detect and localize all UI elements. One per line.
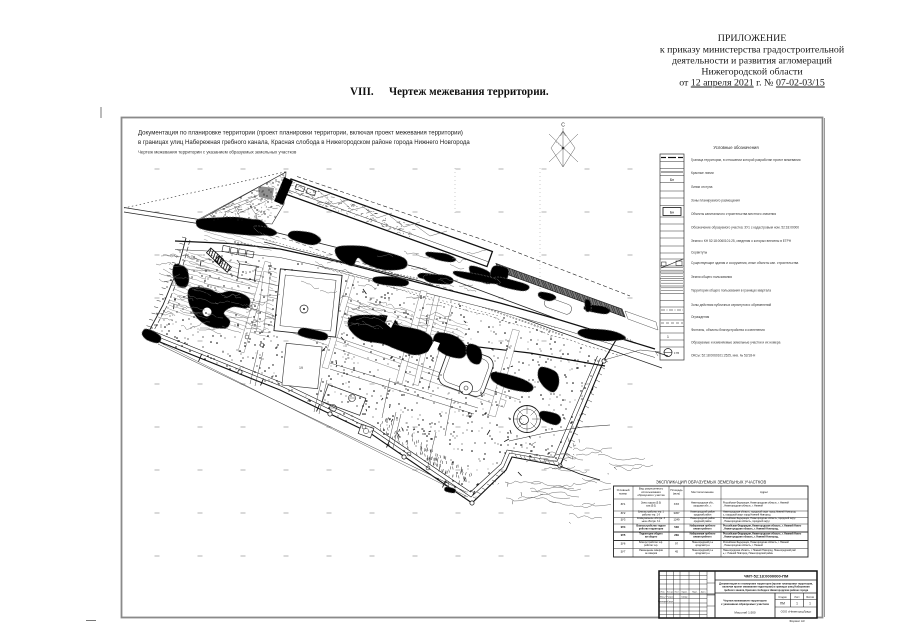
svg-text:Лист: Лист bbox=[674, 592, 679, 594]
svg-text:образуемого участка: образуемого участка bbox=[637, 493, 665, 497]
svg-text:Линии отступа: Линии отступа bbox=[691, 185, 713, 189]
svg-text:Чертеж межевания территории.: Чертеж межевания территории. bbox=[389, 86, 549, 98]
svg-text:Земли с КН 52:18:0060101:25, с: Земли с КН 52:18:0060101:25, сведения о … bbox=[691, 239, 792, 243]
svg-text:Зоны действия публичных сервит: Зоны действия публичных сервитутов и обр… bbox=[691, 303, 771, 307]
svg-text:Подп.: Подп. bbox=[692, 592, 698, 594]
svg-text:Бн: Бн bbox=[670, 211, 674, 215]
svg-text:деятельности и развития агломе: деятельности и развития агломераций bbox=[672, 56, 833, 67]
svg-text:Сервитуты: Сервитуты bbox=[691, 250, 708, 254]
svg-text:, Нижегородская область, г. Ни: , Нижегородская область, г. Нижний Новго… bbox=[723, 528, 779, 531]
svg-text:ПРИЛОЖЕНИЕ: ПРИЛОЖЕНИЕ bbox=[718, 33, 787, 44]
svg-text:ЗУ1: ЗУ1 bbox=[621, 502, 626, 506]
svg-text:1249: 1249 bbox=[674, 518, 680, 522]
svg-text:Зоны планируемого размещения: Зоны планируемого размещения bbox=[691, 199, 740, 203]
svg-text:Граница территории, в отношени: Граница территории, в отношении которой … bbox=[691, 158, 801, 162]
svg-text:ЧМТ-52:18:0000000-ПМ: ЧМТ-52:18:0000000-ПМ bbox=[744, 574, 789, 579]
svg-text:С: С bbox=[561, 123, 565, 129]
svg-text:97: 97 bbox=[675, 542, 678, 546]
svg-text:Существующие здания и сооружен: Существующие здания и сооружения, иные о… bbox=[691, 261, 799, 265]
svg-text:ЗУ2: ЗУ2 bbox=[621, 511, 626, 515]
svg-text:ородский р-н: ородский р-н bbox=[695, 544, 710, 547]
svg-text:ии общего: ии общего bbox=[645, 536, 658, 539]
svg-text:ородский район: ородский район bbox=[694, 520, 712, 523]
svg-text:ЗУ4: ЗУ4 bbox=[621, 525, 626, 529]
svg-text:Изм.: Изм. bbox=[660, 592, 665, 594]
svg-text:ЗУ5: ЗУ5 bbox=[621, 533, 626, 537]
svg-text:Объекты капитального строитель: Объекты капитального строительства местн… bbox=[691, 212, 776, 216]
svg-text:ПМ: ПМ bbox=[780, 602, 785, 606]
svg-text:3457: 3457 bbox=[674, 511, 680, 515]
svg-text:с указанием образуемых участко: с указанием образуемых участков bbox=[721, 602, 769, 606]
svg-text:Разраб: Разраб bbox=[667, 597, 675, 599]
svg-text:548: 548 bbox=[674, 525, 679, 529]
svg-text:в границах улиц Набережная гре: в границах улиц Набережная гребного кана… bbox=[138, 139, 470, 146]
svg-text:239: 239 bbox=[674, 533, 679, 537]
svg-text:1: 1 bbox=[809, 602, 811, 606]
svg-text:Шифр: Шифр bbox=[682, 596, 689, 599]
svg-text:Образуемые и изменяемые земель: Образуемые и изменяемые земельные участк… bbox=[691, 340, 781, 344]
svg-text:Ограждения: Ограждения bbox=[691, 315, 709, 319]
svg-text:Земли общего пользования: Земли общего пользования bbox=[691, 275, 732, 279]
svg-text:Лист: Лист bbox=[794, 596, 800, 599]
svg-text:ОКСы: 52:18:0060101:2525, инв.: ОКСы: 52:18:0060101:2525, инв. № 52/18-Н bbox=[691, 353, 756, 357]
svg-text:Местоположение: Местоположение bbox=[691, 490, 714, 494]
svg-text:Кол.уч: Кол.уч bbox=[667, 592, 673, 594]
svg-text:ежная гребного: ежная гребного bbox=[693, 536, 712, 539]
svg-text:Бн: Бн bbox=[670, 178, 674, 182]
svg-text:Листов: Листов bbox=[806, 596, 814, 599]
svg-text:ородский р-н: ородский р-н bbox=[695, 552, 710, 555]
svg-text:ООО «НижегородГрад»: ООО «НижегородГрад» bbox=[781, 610, 812, 614]
svg-text:Струк: Струк bbox=[667, 601, 673, 603]
svg-text:, Нижегородская область, г. Ни: , Нижегородская область, г. Нижний Новго… bbox=[723, 536, 779, 539]
svg-text:, Нижегородская область, город: , Нижегородская область, городской округ bbox=[723, 520, 770, 523]
svg-text:от 12 апреля 2021 г. № 07-02-0: от 12 апреля 2021 г. № 07-02-03/15 bbox=[679, 78, 825, 89]
svg-text:ЭКСПЛИКАЦИЯ ОБРАЗУЕМЫХ ЗЕМЕЛЬН: ЭКСПЛИКАЦИЯ ОБРАЗУЕМЫХ ЗЕМЕЛЬНЫХ УЧАСТКО… bbox=[656, 480, 767, 485]
svg-text:ХХХ: ХХХ bbox=[674, 502, 680, 506]
svg-text:ЗУ6: ЗУ6 bbox=[621, 542, 626, 546]
svg-text:Территории общего пользования: Территории общего пользования в границах… bbox=[691, 289, 771, 293]
svg-text:1: 1 bbox=[796, 602, 798, 606]
svg-text:1: 1 bbox=[667, 335, 669, 339]
svg-text:гребного канала, Красная слобо: гребного канала, Красная слобода в Нижег… bbox=[724, 589, 809, 592]
svg-text:Фонтаны, объекты благоустройст: Фонтаны, объекты благоустройства и озеле… bbox=[691, 328, 765, 332]
svg-text:Стадия: Стадия bbox=[778, 596, 787, 599]
svg-text:19: 19 bbox=[299, 366, 303, 370]
svg-text:ыха (5.0): ыха (5.0) bbox=[646, 505, 656, 508]
svg-text:45: 45 bbox=[675, 550, 678, 554]
svg-text:(кв.м): (кв.м) bbox=[673, 492, 680, 496]
svg-text:ь, г. Нижний Новгород, Нижегор: ь, г. Нижний Новгород, Нижегородский рай… bbox=[723, 552, 774, 555]
svg-text:Формат А3: Формат А3 bbox=[789, 619, 804, 623]
svg-text:3: 3 bbox=[245, 271, 247, 275]
svg-text:ие скверов: ие скверов bbox=[645, 552, 658, 555]
svg-text:Адрес: Адрес bbox=[760, 490, 769, 494]
svg-text:, Нижегородская область, г. Ни: , Нижегородская область, г. Нижний bbox=[723, 544, 763, 547]
svg-text:ородская обл., г.: ородская обл., г. bbox=[693, 505, 711, 508]
svg-text:Обозначение образуемого участк: Обозначение образуемого участка: ЗУ1 с к… bbox=[691, 226, 799, 230]
svg-text:Изм-2: Изм-2 bbox=[660, 597, 667, 599]
svg-text:17/5: 17/5 bbox=[674, 351, 680, 355]
svg-text:, Нижегородская область, г. Ни: , Нижегородская область, г. Нижний bbox=[723, 505, 763, 508]
svg-text:Масштаб 1:500: Масштаб 1:500 bbox=[734, 611, 756, 615]
svg-text:№док.: №док. bbox=[681, 591, 688, 594]
svg-text:Чертеж межевания территории с: Чертеж межевания территории с указанием … bbox=[138, 150, 297, 155]
svg-text:Условные обозначения: Условные обозначения bbox=[713, 145, 758, 150]
svg-text:ройство тер.: ройство тер. bbox=[644, 544, 658, 547]
svg-text:Документация по планировке тер: Документация по планировке территории (п… bbox=[138, 131, 463, 137]
svg-text:номер: номер bbox=[619, 492, 628, 496]
svg-text:VIII.: VIII. bbox=[350, 86, 374, 98]
svg-text:Нижегородской области: Нижегородской области bbox=[701, 67, 803, 78]
svg-text:ьное обслуж. 3.1: ьное обслуж. 3.1 bbox=[642, 520, 661, 523]
svg-text:Красные линии: Красные линии bbox=[691, 171, 714, 175]
svg-text:ЗУ3: ЗУ3 bbox=[621, 518, 626, 522]
svg-text:ЗУ7: ЗУ7 bbox=[621, 550, 626, 554]
svg-text:ройство территории: ройство территории bbox=[639, 528, 664, 531]
svg-text:ежная гребного: ежная гребного bbox=[693, 528, 712, 531]
svg-text:к приказу министерства градост: к приказу министерства градостроительной bbox=[660, 45, 845, 56]
